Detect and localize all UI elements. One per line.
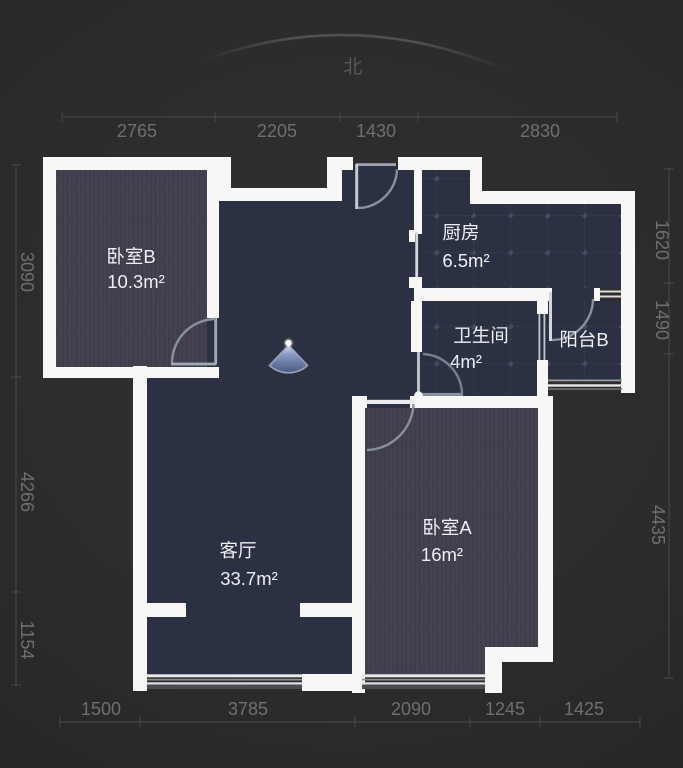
svg-text:1154: 1154: [17, 621, 37, 660]
svg-text:10.3m²: 10.3m²: [107, 271, 165, 292]
svg-text:2205: 2205: [257, 121, 297, 141]
svg-text:33.7m²: 33.7m²: [220, 568, 278, 589]
svg-text:卧室A: 卧室A: [422, 517, 472, 538]
svg-text:4435: 4435: [648, 505, 668, 545]
svg-text:2830: 2830: [520, 121, 560, 141]
svg-text:1500: 1500: [81, 699, 121, 719]
svg-text:卧室B: 卧室B: [106, 246, 155, 267]
svg-text:卫生间: 卫生间: [453, 325, 509, 346]
svg-text:2765: 2765: [117, 121, 157, 141]
svg-text:2090: 2090: [391, 699, 431, 719]
svg-text:北: 北: [343, 56, 362, 78]
svg-text:3785: 3785: [228, 699, 268, 719]
svg-text:客厅: 客厅: [219, 540, 256, 561]
svg-text:厨房: 厨房: [442, 222, 479, 243]
svg-text:1490: 1490: [652, 300, 672, 340]
svg-text:1620: 1620: [652, 220, 672, 260]
svg-text:4266: 4266: [17, 472, 37, 512]
svg-text:1245: 1245: [485, 699, 525, 719]
svg-text:1425: 1425: [564, 699, 604, 719]
svg-text:6.5m²: 6.5m²: [442, 250, 489, 271]
svg-text:3090: 3090: [17, 252, 37, 292]
svg-text:阳台B: 阳台B: [559, 329, 608, 350]
svg-text:4m²: 4m²: [450, 351, 482, 372]
svg-text:1430: 1430: [356, 121, 396, 141]
svg-text:16m²: 16m²: [421, 544, 463, 565]
